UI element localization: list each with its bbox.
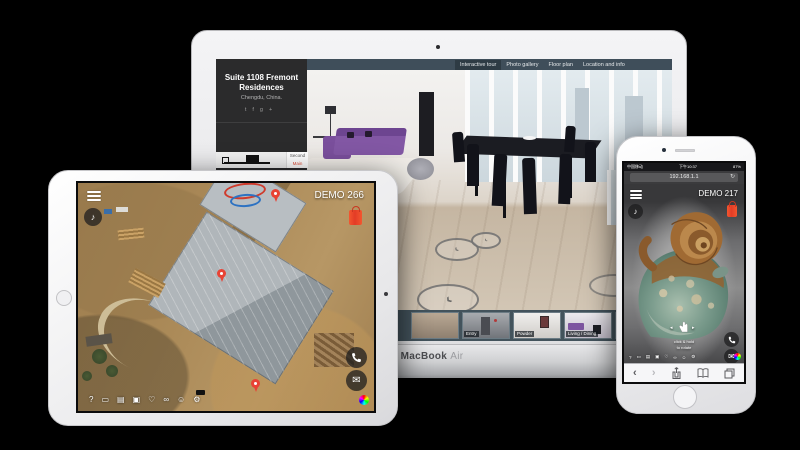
thumbnail-label: Powder: [515, 331, 534, 337]
phone-button[interactable]: [346, 347, 367, 368]
carrier-label: 中国移动: [627, 163, 643, 171]
ipad-home-button[interactable]: [56, 290, 72, 306]
heart-icon[interactable]: ♡: [664, 354, 668, 360]
music-button[interactable]: ♪: [84, 208, 102, 226]
demo-label: DEMO 217: [698, 189, 738, 198]
settings-icon[interactable]: ⚙: [691, 354, 695, 360]
dining-chair: [492, 154, 508, 207]
tree: [82, 371, 92, 381]
thumb-sofa: [568, 323, 584, 330]
map-pin[interactable]: [217, 269, 226, 282]
shopping-bag-icon[interactable]: [727, 205, 737, 217]
vr-goggles-icon[interactable]: ▭: [101, 395, 109, 404]
sidebar-divider: [216, 122, 307, 123]
macbook-brand-light: Air: [450, 351, 463, 362]
rotate-hint-line2: to rotate: [624, 345, 744, 350]
smiley-icon[interactable]: ☺: [682, 355, 687, 360]
tabs-icon[interactable]: [724, 368, 735, 379]
url-field[interactable]: 192.168.1.1 ↻: [630, 173, 738, 182]
thumb-art: [540, 316, 549, 328]
floor-selector: Second Main: [286, 152, 308, 168]
facebook-icon[interactable]: f: [252, 107, 260, 113]
settings-badge: [196, 390, 205, 395]
ipad-toolbar: ? ▭ ▤ ▣ ♡ ∞ ☺ ⚙: [89, 395, 200, 404]
object-viewer[interactable]: DEMO 217 ♪ ◂ ▸ click & hold to rotate ✉ …: [624, 184, 744, 363]
dining-chair: [585, 142, 596, 182]
thumbnail-label: Entry: [464, 331, 479, 337]
room-thumbnail[interactable]: Entry: [462, 312, 510, 339]
floorplan-room: [222, 157, 229, 164]
blue-truck: [104, 209, 112, 214]
room-thumbnail[interactable]: Powder: [513, 312, 561, 339]
battery-label: 87%: [733, 163, 741, 171]
pillow: [365, 131, 372, 137]
demo-label: DEMO 266: [315, 190, 364, 201]
camera-icon[interactable]: ▣: [655, 354, 659, 360]
floor-option-main[interactable]: Main: [287, 160, 308, 168]
shopping-bag-icon[interactable]: [349, 210, 362, 225]
menu-icon[interactable]: [87, 191, 101, 201]
iphone-toolbar: ? ▭ ▤ ▣ ♡ ∞ ☺ ⚙: [629, 354, 695, 360]
safari-toolbar: ‹ ›: [624, 363, 744, 382]
table-plate: [523, 136, 536, 140]
bookmarks-icon[interactable]: [697, 368, 709, 378]
refresh-icon[interactable]: ↻: [730, 173, 735, 182]
dining-chair: [467, 144, 479, 186]
rotate-arrow-left-icon: ◂: [670, 325, 673, 331]
ipad-screen: ♪ DEMO 266 ? ▭ ▤ ▣ ♡ ∞ ☺ ⚙ ✉: [78, 183, 374, 411]
settings-icon[interactable]: ⚙: [193, 395, 200, 404]
ipad-camera: [384, 292, 388, 296]
printer-icon[interactable]: ▤: [646, 354, 650, 360]
printer-icon[interactable]: ▤: [117, 395, 125, 404]
googleplus-icon[interactable]: g+: [260, 107, 278, 113]
macbook-brand-bold: MacBook: [401, 351, 448, 362]
iphone-earpiece: [675, 149, 695, 152]
map-pin[interactable]: [271, 189, 280, 202]
screenshot-stage: MacBook Air: [0, 0, 800, 450]
floorplan-thumbnail[interactable]: [216, 152, 286, 168]
property-title: Suite 1108 Fremont Residences: [220, 73, 303, 93]
status-bar: 中国移动 下午10:37 87%: [624, 163, 744, 171]
tree: [92, 349, 107, 364]
iphone-camera: [662, 148, 666, 152]
rotate-arrow-right-icon: ▸: [692, 325, 695, 331]
vr-goggles-icon[interactable]: ▭: [637, 354, 641, 360]
thumb-flower: [494, 319, 497, 322]
tab-interactive-tour[interactable]: Interactive tour: [455, 60, 501, 70]
tab-floor-plan[interactable]: Floor plan: [544, 60, 578, 70]
dining-chair: [558, 154, 572, 204]
hotspot-arrow-icon: ‹: [483, 237, 489, 244]
pillow: [347, 132, 354, 138]
camera-icon[interactable]: ▣: [133, 395, 141, 404]
back-icon[interactable]: ‹: [633, 364, 637, 383]
hotspot-arrow-icon: ‹: [452, 244, 462, 255]
mail-button[interactable]: ✉: [346, 370, 367, 391]
tab-location-info[interactable]: Location and info: [578, 60, 630, 70]
wall-art: [419, 92, 434, 156]
url-text: 192.168.1.1: [669, 174, 698, 180]
map-pin[interactable]: [251, 379, 260, 392]
white-trailer: [116, 207, 128, 212]
dining-chair: [452, 132, 465, 163]
iphone-home-button[interactable]: [673, 385, 697, 409]
phone-icon: [351, 352, 362, 363]
room-thumbnail[interactable]: [411, 312, 459, 339]
phone-button[interactable]: [724, 332, 739, 347]
thumb-door: [481, 317, 490, 335]
music-note-icon: ♪: [634, 207, 638, 216]
floor-lamp-shade: [325, 106, 336, 114]
webcam-icon: [436, 45, 440, 49]
dining-chair: [564, 126, 576, 153]
browser-address-bar: 192.168.1.1 ↻: [624, 171, 744, 184]
mail-icon: ✉: [352, 375, 360, 386]
dining-chair: [522, 158, 537, 214]
tree: [106, 365, 118, 377]
floorplan-block: [246, 155, 259, 164]
heart-icon[interactable]: ♡: [148, 395, 155, 404]
phone-icon: [728, 336, 736, 344]
link-icon[interactable]: ∞: [673, 355, 676, 360]
room-thumbnail[interactable]: Living / Dining: [564, 312, 612, 339]
nav-hotspot[interactable]: ‹: [471, 232, 501, 249]
property-location: Chengdu, China.: [220, 95, 303, 101]
thumbnail-label: Living / Dining: [566, 331, 598, 337]
share-icon[interactable]: [671, 367, 682, 379]
tour-navbar: Interactive tour Photo gallery Floor pla…: [307, 59, 672, 70]
menu-icon[interactable]: [630, 190, 642, 199]
iphone-screen: 中国移动 下午10:37 87% 192.168.1.1 ↻: [624, 163, 744, 382]
clock-label: 下午10:37: [679, 163, 697, 171]
floor-option-second[interactable]: Second: [287, 152, 308, 160]
social-row: tfg+: [216, 107, 307, 113]
help-icon[interactable]: ?: [629, 355, 632, 360]
music-button[interactable]: ♪: [628, 204, 643, 219]
hotspot-arrow-icon: ‹: [441, 291, 456, 307]
help-icon[interactable]: ?: [89, 395, 93, 404]
link-icon[interactable]: ∞: [163, 395, 169, 404]
hand-cursor-icon: [677, 319, 691, 333]
smiley-icon[interactable]: ☺: [177, 395, 185, 404]
color-wheel-icon[interactable]: [359, 395, 369, 405]
forward-icon[interactable]: ›: [652, 364, 656, 383]
accent-chair: [407, 158, 434, 180]
music-note-icon: ♪: [91, 212, 96, 222]
tab-photo-gallery[interactable]: Photo gallery: [501, 60, 543, 70]
color-wheel-icon[interactable]: [734, 353, 741, 360]
